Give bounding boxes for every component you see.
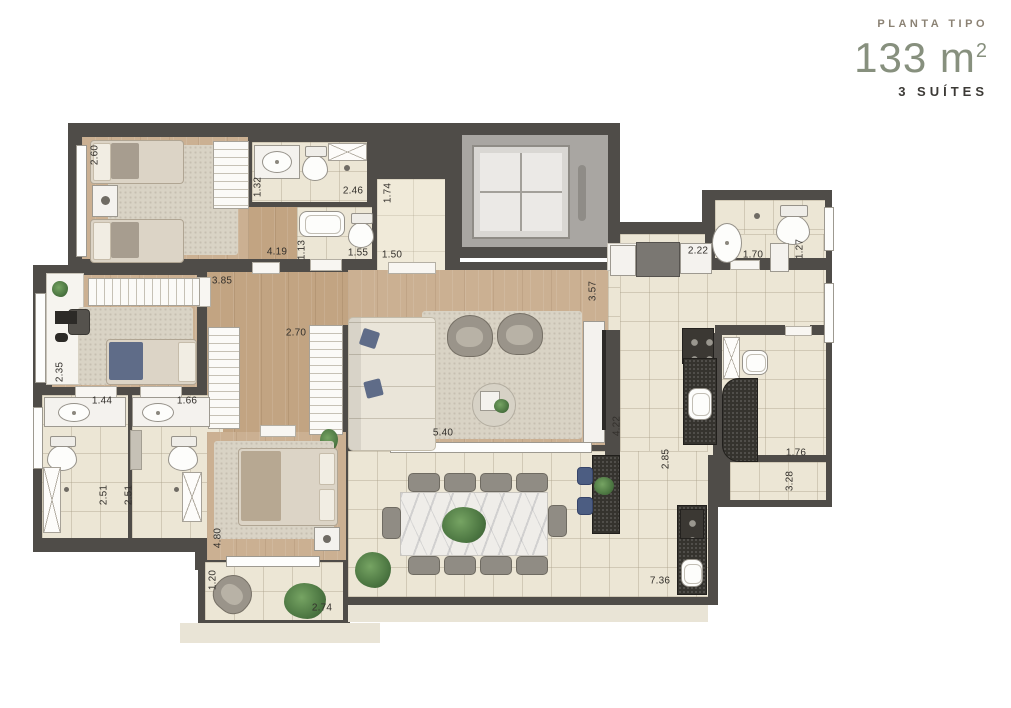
tv-panel — [602, 330, 606, 430]
lamp-icon — [323, 535, 331, 543]
pillow — [319, 453, 335, 485]
dim-4-19: 4.19 — [267, 247, 287, 258]
living-sofa — [348, 317, 436, 451]
plan-suites: 3 SUÍTES — [854, 84, 988, 99]
wall-living-kitchen — [605, 330, 620, 462]
laundry-washer — [723, 337, 740, 379]
dim-1-13: 1.13 — [297, 240, 308, 260]
blanket — [111, 222, 139, 258]
dim-1-27: 1.27 — [795, 239, 806, 259]
dim-2-22: 2.22 — [688, 246, 708, 257]
bathA-window — [33, 407, 43, 469]
pillow — [93, 222, 111, 260]
bathA-shower — [43, 467, 61, 533]
dim-2-51-a: 2.51 — [99, 485, 110, 505]
shower-head-icon — [64, 487, 69, 492]
plan-kicker: PLANTA TIPO — [854, 18, 988, 30]
wc-sink — [712, 223, 742, 263]
suite2-wardrobe — [88, 278, 200, 306]
master-bed — [238, 448, 338, 526]
bathB-sink — [142, 403, 174, 422]
suite1-window — [76, 145, 87, 257]
terrace-plant-icon — [355, 552, 391, 588]
dim-1-50: 1.50 — [382, 250, 402, 261]
bar-stool — [577, 497, 593, 515]
sofa-pillow — [363, 378, 384, 399]
dim-2-60: 2.60 — [90, 145, 101, 165]
dim-2-85: 2.85 — [661, 449, 672, 469]
kitchen-cabinet-1 — [610, 245, 636, 276]
dim-1-20: 1.20 — [208, 570, 219, 590]
dim-4-80: 4.80 — [213, 528, 224, 548]
corridor-328-floor — [730, 462, 826, 500]
pillow — [178, 342, 196, 382]
sofa-pillow — [359, 328, 380, 349]
hall-wardrobe-left — [208, 327, 240, 429]
dining-chair — [516, 556, 548, 575]
blanket — [241, 451, 281, 521]
dim-2-74: 2.74 — [312, 603, 332, 614]
suite1-bed-2 — [90, 219, 184, 263]
dim-1-44: 1.44 — [92, 396, 112, 407]
kitchen-sink — [688, 388, 712, 420]
kitchen-fridge — [636, 242, 680, 277]
bar-stool — [577, 467, 593, 485]
shower-head-icon — [174, 487, 179, 492]
dim-7-36: 7.36 — [650, 576, 670, 587]
kitchen-window — [824, 283, 834, 343]
dim-3-57: 3.57 — [588, 281, 599, 301]
balcony-plant-icon — [284, 583, 326, 619]
elevator-car — [472, 145, 570, 239]
lamp-icon — [101, 196, 110, 205]
coffee-table-plant-icon — [494, 399, 509, 413]
bath2-tub — [299, 211, 345, 237]
dining-chair — [444, 556, 476, 575]
bathB-toilet — [168, 445, 198, 471]
wc-window — [824, 207, 834, 251]
dim-1-55: 1.55 — [348, 248, 368, 259]
grill-icon — [680, 509, 704, 539]
blanket — [109, 342, 143, 380]
suite1-wardrobe — [213, 141, 249, 209]
suite2-bed — [106, 339, 197, 385]
shower-head-icon — [344, 165, 350, 171]
blanket — [111, 143, 139, 179]
dim-3-28: 3.28 — [785, 471, 796, 491]
grill-sink — [681, 559, 703, 587]
dim-1-74: 1.74 — [383, 183, 394, 203]
desk-plant-icon — [52, 281, 68, 297]
title-block: PLANTA TIPO 133 m2 3 SUÍTES — [854, 18, 988, 99]
shower-head-icon — [754, 213, 760, 219]
floor-plan-page: { "header": { "kicker": "PLANTA TIPO", "… — [0, 0, 1011, 708]
dim-2-46: 2.46 — [343, 186, 363, 197]
dim-2-51-b: 2.51 — [124, 485, 135, 505]
laundry-door — [785, 326, 812, 336]
floor-plan: 2.60 1.32 2.46 1.74 1.13 1.55 1.50 4.19 … — [30, 115, 832, 671]
wc-door — [730, 260, 760, 270]
suite1-door — [252, 262, 280, 274]
master-window — [226, 556, 320, 567]
bathB-partition — [130, 430, 142, 470]
dining-chair — [548, 505, 567, 537]
dim-1-66: 1.66 — [177, 396, 197, 407]
suite1-bed-1 — [90, 140, 184, 184]
dining-chair — [444, 473, 476, 492]
dim-1-32: 1.32 — [253, 177, 264, 197]
bath1-shower — [328, 143, 367, 161]
laundry-tub — [742, 350, 768, 375]
dim-2-35: 2.35 — [55, 362, 66, 382]
hall-wardrobe-right — [309, 325, 343, 435]
dining-chair — [408, 556, 440, 575]
dim-5-40: 5.40 — [433, 428, 453, 439]
table-plant-icon — [442, 507, 486, 543]
dining-chair — [480, 473, 512, 492]
dining-chair — [480, 556, 512, 575]
dim-3-85: 3.85 — [212, 276, 232, 287]
terrace-apron — [348, 605, 708, 622]
suite2-window — [35, 293, 46, 383]
master-nightstand — [314, 527, 340, 551]
plan-area: 133 m2 — [854, 36, 988, 80]
entry-hall-door — [388, 262, 436, 274]
bathA-sink — [58, 403, 90, 422]
desk-item-icon — [55, 333, 68, 342]
living-armchair-2 — [497, 313, 543, 355]
dim-2-70: 2.70 — [286, 328, 306, 339]
dining-chair — [382, 507, 401, 539]
dining-chair — [516, 473, 548, 492]
wall-laundry-top-left — [715, 325, 785, 335]
dim-4-22: 4.22 — [612, 416, 623, 436]
bath1-sink — [262, 151, 292, 173]
bar-plant-icon — [594, 477, 614, 495]
master-door — [260, 425, 296, 437]
bath2-toilet — [348, 222, 374, 248]
kitchen-cabinet-3 — [770, 243, 789, 272]
desk-monitor-icon — [55, 311, 77, 324]
dim-1-70: 1.70 — [743, 250, 763, 261]
dining-chair — [408, 473, 440, 492]
bath1-toilet — [302, 155, 328, 181]
balcony-apron — [180, 623, 380, 643]
bath2-door — [310, 259, 342, 271]
bathB-shower — [182, 472, 202, 522]
dim-1-76: 1.76 — [786, 448, 806, 459]
elevator-door-icon — [578, 165, 586, 221]
living-armchair-1 — [447, 315, 493, 357]
suite1-nightstand — [92, 185, 118, 217]
laundry-counter — [722, 378, 758, 462]
pillow — [319, 489, 335, 521]
